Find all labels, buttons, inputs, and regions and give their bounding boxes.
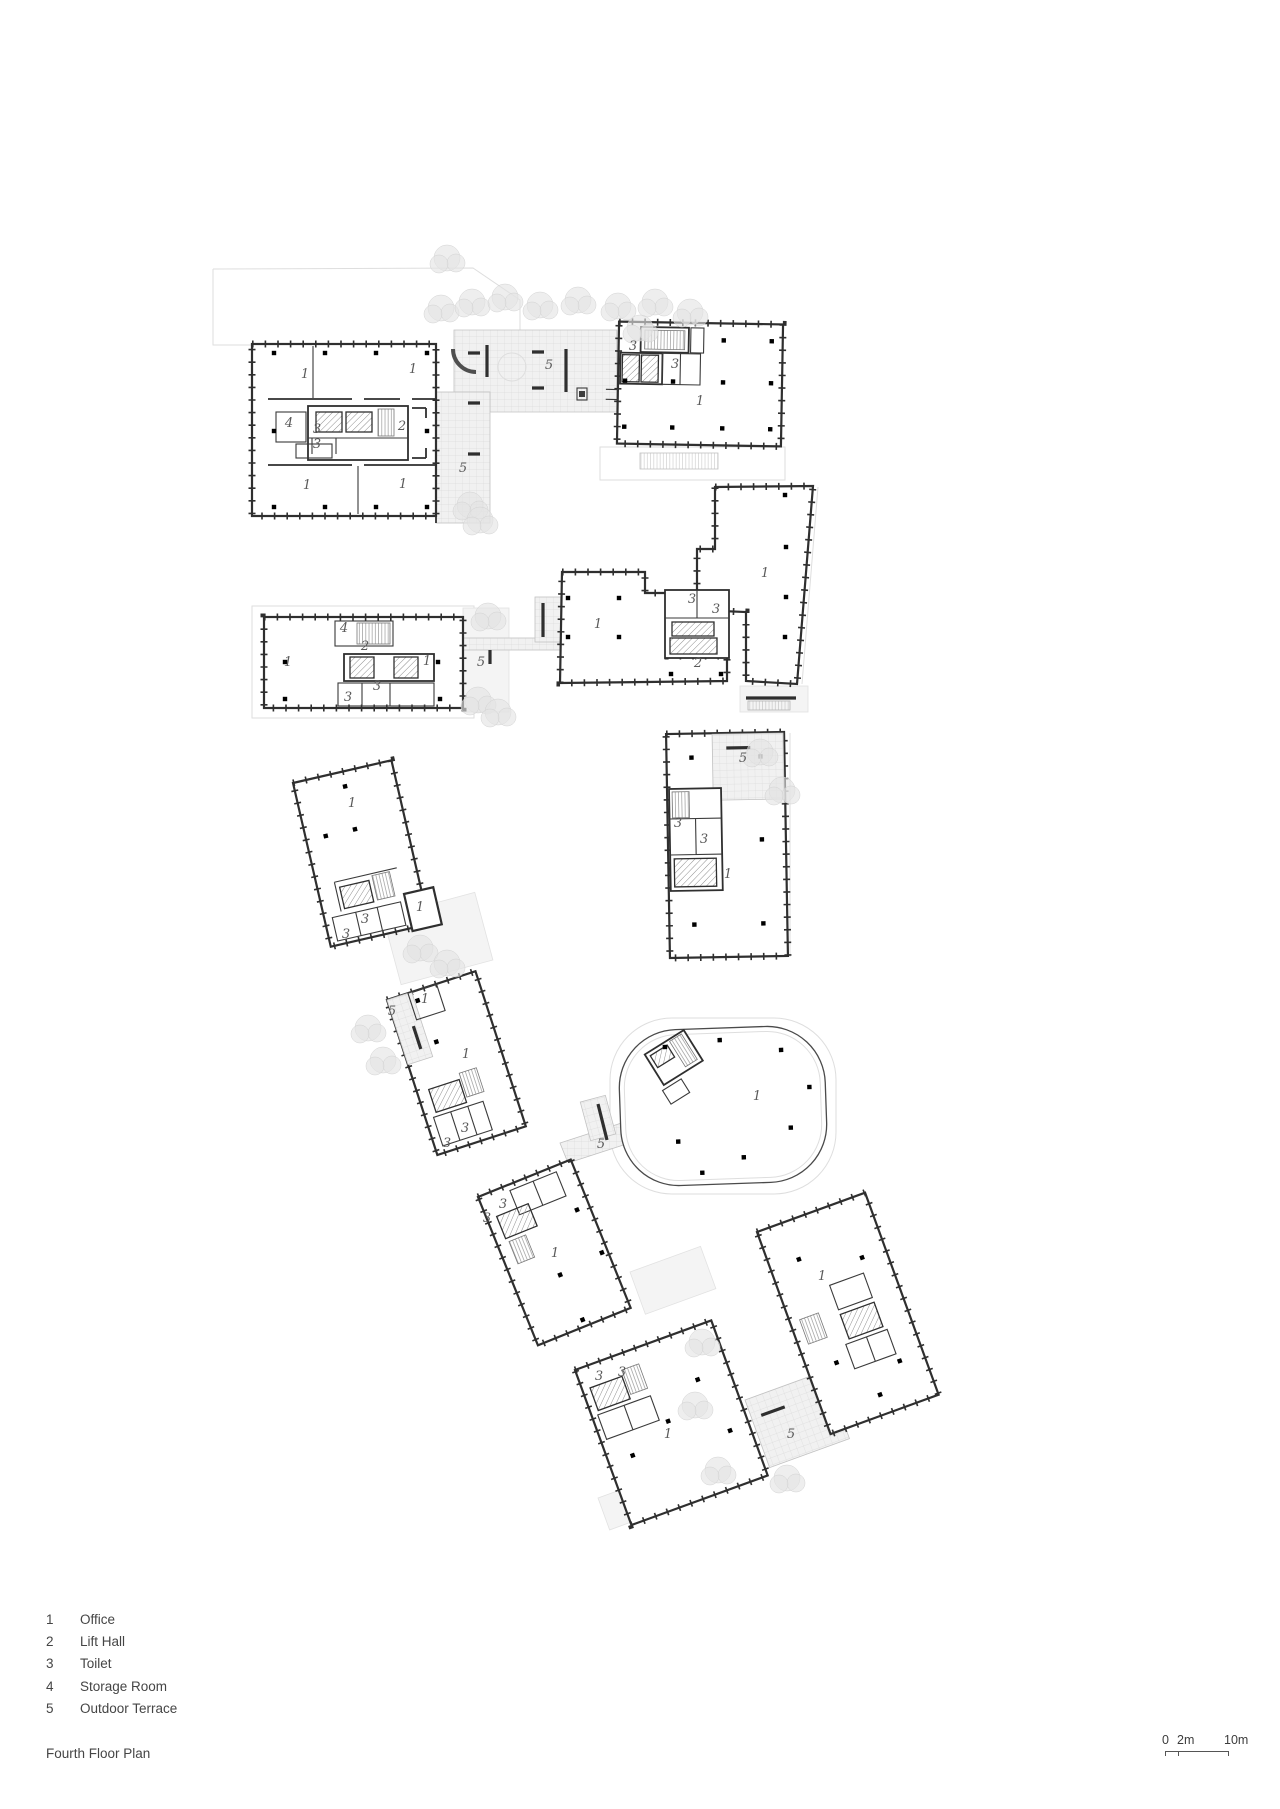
room-label: 3 (712, 602, 720, 617)
room-label: 1 (818, 1269, 826, 1284)
drawing-title: Fourth Floor Plan (46, 1746, 150, 1761)
room-label: 3 (342, 927, 350, 942)
scale-bar: 0 2m 10m (1156, 1733, 1256, 1761)
room-label: 5 (787, 1427, 795, 1442)
legend-row: 4 Storage Room (46, 1675, 177, 1697)
room-label: 3 (443, 1136, 451, 1151)
block-j (575, 1320, 768, 1525)
legend-num: 1 (46, 1612, 80, 1627)
room-label: 1 (761, 566, 769, 581)
legend-row: 1 Office (46, 1608, 177, 1630)
room-label: 1 (421, 992, 429, 1007)
room-label: 5 (459, 461, 467, 476)
room-label: 3 (674, 816, 682, 831)
room-label: 2 (397, 419, 406, 434)
room-label: 1 (303, 478, 311, 493)
room-label: 3 (700, 832, 708, 847)
room-label: 1 (724, 867, 732, 882)
room-label: 5 (477, 655, 485, 670)
room-label: 1 (664, 1427, 672, 1442)
room-label: 5 (739, 751, 747, 766)
room-label: 1 (462, 1047, 470, 1062)
room-label: 2 (693, 656, 702, 671)
legend-label: Storage Room (80, 1679, 167, 1694)
room-label: 3 (618, 1365, 626, 1380)
room-label: 3 (499, 1197, 507, 1212)
legend-num: 2 (46, 1634, 80, 1649)
legend-num: 3 (46, 1656, 80, 1671)
room-label: 3 (344, 690, 352, 705)
room-label: 2 (360, 639, 369, 654)
room-label: 1 (551, 1246, 559, 1261)
room-label: 3 (671, 357, 679, 372)
legend-row: 3 Toilet (46, 1653, 177, 1675)
room-label: 1 (594, 617, 602, 632)
room-label: 1 (423, 654, 431, 669)
legend-label: Toilet (80, 1656, 112, 1671)
room-label: 1 (399, 477, 407, 492)
legend: 1 Office 2 Lift Hall 3 Toilet 4 Storage … (46, 1608, 177, 1720)
room-label: 1 (348, 796, 356, 811)
room-label: 3 (361, 912, 369, 927)
drawing-sheet: 1111433255331112331142335533113315113351… (0, 0, 1280, 1809)
legend-label: Outdoor Terrace (80, 1701, 177, 1716)
room-label: 1 (284, 655, 292, 670)
room-label: 5 (545, 358, 553, 373)
room-label: 3 (595, 1369, 603, 1384)
scale-mid: 2m (1177, 1733, 1194, 1747)
block-g (387, 971, 526, 1155)
room-label: 3 (483, 1211, 491, 1226)
legend-row: 5 Outdoor Terrace (46, 1698, 177, 1720)
room-label: 3 (313, 422, 321, 437)
room-label: 3 (313, 437, 321, 452)
room-label: 4 (339, 621, 348, 636)
legend-label: Office (80, 1612, 115, 1627)
room-label: 1 (301, 367, 309, 382)
floor-plan-canvas: 1111433255331112331142335533113315113351… (0, 0, 1280, 1809)
room-label: 1 (409, 362, 417, 377)
room-label: 5 (388, 1004, 396, 1019)
scale-line (1165, 1751, 1229, 1752)
room-label: 1 (696, 394, 704, 409)
room-label: 3 (629, 339, 637, 354)
block-oval (617, 1024, 828, 1187)
link-c-c2 (740, 686, 808, 712)
room-label: 3 (461, 1121, 469, 1136)
room-label: 1 (416, 900, 424, 915)
legend-row: 2 Lift Hall (46, 1630, 177, 1652)
legend-num: 5 (46, 1701, 80, 1716)
room-label: 1 (753, 1089, 761, 1104)
scale-zero: 0 (1162, 1733, 1169, 1747)
scale-end: 10m (1224, 1733, 1248, 1747)
room-label: 5 (597, 1137, 605, 1152)
legend-num: 4 (46, 1679, 80, 1694)
room-label: 3 (373, 679, 381, 694)
room-label: 4 (284, 416, 293, 431)
block-e (264, 617, 463, 708)
room-label: 3 (688, 592, 696, 607)
legend-label: Lift Hall (80, 1634, 125, 1649)
